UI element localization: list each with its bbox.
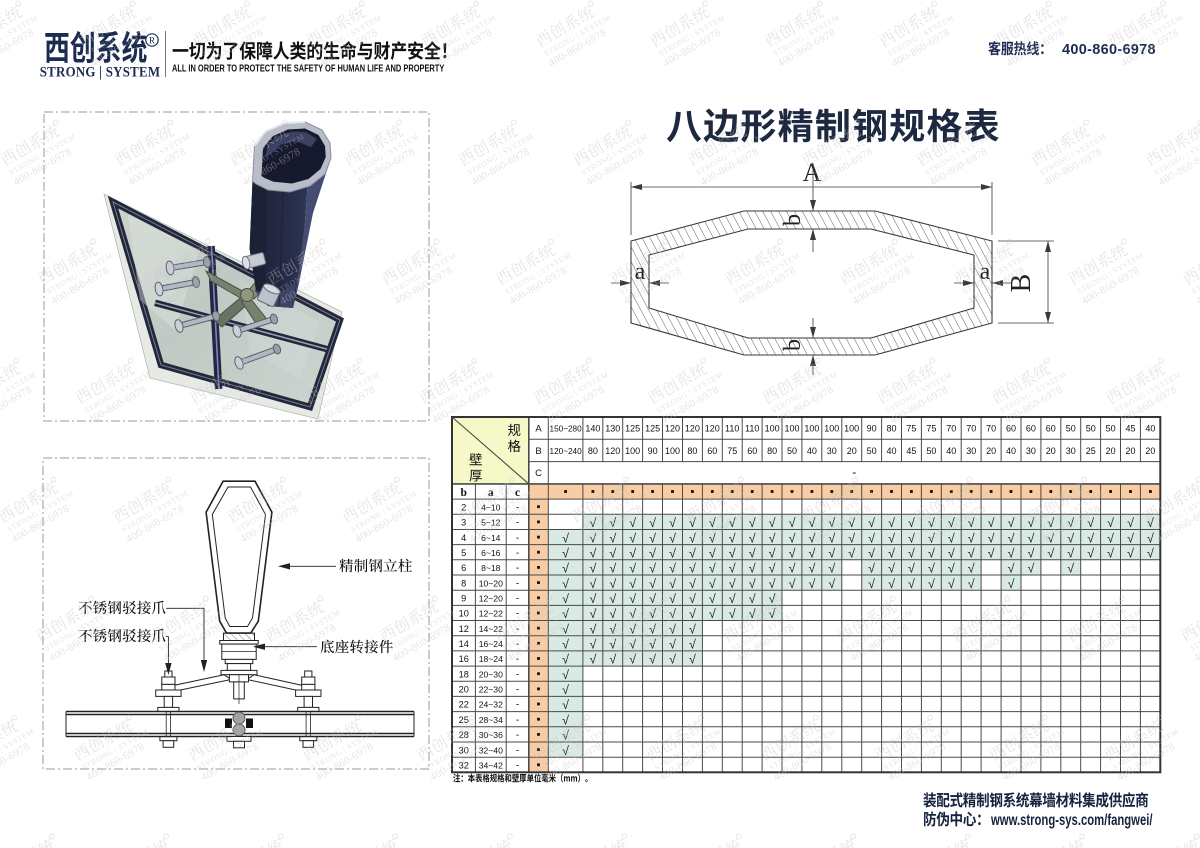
svg-text:√: √ xyxy=(928,546,935,560)
svg-text:125: 125 xyxy=(625,424,640,434)
svg-text:√: √ xyxy=(769,531,776,545)
svg-text:√: √ xyxy=(609,592,616,606)
svg-text:√: √ xyxy=(888,516,895,530)
svg-text:75: 75 xyxy=(926,424,936,434)
svg-text:√: √ xyxy=(669,592,676,606)
svg-text:12~22: 12~22 xyxy=(479,609,503,619)
svg-text:√: √ xyxy=(1067,546,1074,560)
svg-text:√: √ xyxy=(749,546,756,560)
svg-text:√: √ xyxy=(669,653,676,667)
svg-text:√: √ xyxy=(1047,546,1054,560)
svg-text:b: b xyxy=(780,339,806,351)
svg-text:-: - xyxy=(516,745,519,756)
svg-text:√: √ xyxy=(689,531,696,545)
svg-text:√: √ xyxy=(1127,546,1134,560)
svg-text:60: 60 xyxy=(1026,424,1036,434)
svg-text:18~24: 18~24 xyxy=(479,654,503,664)
svg-text:-: - xyxy=(516,578,519,589)
svg-text:25: 25 xyxy=(1086,446,1096,456)
svg-text:√: √ xyxy=(828,546,835,560)
svg-text:√: √ xyxy=(988,531,995,545)
svg-text:-: - xyxy=(516,715,519,726)
svg-text:www.strong-sys.com/fangwei/: www.strong-sys.com/fangwei/ xyxy=(990,811,1153,828)
svg-text:C: C xyxy=(535,468,542,479)
svg-text:√: √ xyxy=(562,683,569,697)
svg-text:24~32: 24~32 xyxy=(479,700,503,710)
svg-text:6~16: 6~16 xyxy=(481,548,501,558)
svg-text:30: 30 xyxy=(966,446,976,456)
svg-text:√: √ xyxy=(928,562,935,576)
svg-text:100: 100 xyxy=(784,424,799,434)
svg-text:40: 40 xyxy=(946,446,956,456)
svg-text:√: √ xyxy=(888,577,895,591)
svg-text:-: - xyxy=(516,563,519,574)
svg-text:90: 90 xyxy=(648,446,658,456)
svg-text:10: 10 xyxy=(459,609,469,619)
svg-text:60: 60 xyxy=(707,446,717,456)
svg-text:80: 80 xyxy=(767,446,777,456)
svg-text:√: √ xyxy=(988,546,995,560)
svg-text:√: √ xyxy=(669,577,676,591)
svg-text:√: √ xyxy=(589,562,596,576)
svg-text:-: - xyxy=(516,624,519,635)
svg-text:√: √ xyxy=(968,531,975,545)
svg-text:√: √ xyxy=(589,622,596,636)
svg-text:50: 50 xyxy=(867,446,877,456)
svg-text:40: 40 xyxy=(1006,446,1016,456)
svg-text:√: √ xyxy=(868,562,875,576)
svg-text:-: - xyxy=(516,533,519,544)
svg-text:22~30: 22~30 xyxy=(479,685,503,695)
svg-text:20: 20 xyxy=(847,446,857,456)
svg-text:√: √ xyxy=(629,577,636,591)
svg-text:√: √ xyxy=(729,531,736,545)
svg-text:-: - xyxy=(516,594,519,605)
svg-text:√: √ xyxy=(689,653,696,667)
svg-text:A: A xyxy=(535,424,542,435)
svg-text:√: √ xyxy=(789,562,796,576)
svg-text:20~30: 20~30 xyxy=(479,669,503,679)
svg-text:√: √ xyxy=(729,562,736,576)
svg-text:√: √ xyxy=(888,546,895,560)
svg-text:√: √ xyxy=(689,622,696,636)
svg-text:√: √ xyxy=(609,531,616,545)
svg-text:100: 100 xyxy=(824,424,839,434)
svg-text:50: 50 xyxy=(1066,424,1076,434)
svg-text:√: √ xyxy=(769,592,776,606)
svg-text:100: 100 xyxy=(844,424,859,434)
svg-text:5: 5 xyxy=(461,548,466,558)
svg-text:√: √ xyxy=(968,577,975,591)
svg-text:√: √ xyxy=(749,516,756,530)
svg-text:9: 9 xyxy=(461,594,466,604)
svg-text:√: √ xyxy=(749,577,756,591)
svg-text:√: √ xyxy=(1147,531,1154,545)
svg-text:√: √ xyxy=(649,653,656,667)
svg-text:√: √ xyxy=(629,546,636,560)
svg-text:140: 140 xyxy=(585,424,600,434)
svg-text:√: √ xyxy=(928,577,935,591)
svg-text:75: 75 xyxy=(727,446,737,456)
svg-text:√: √ xyxy=(1027,531,1034,545)
svg-text:110: 110 xyxy=(725,424,739,434)
svg-text:√: √ xyxy=(649,577,656,591)
svg-text:√: √ xyxy=(669,516,676,530)
svg-text:28~34: 28~34 xyxy=(479,715,503,725)
svg-text:√: √ xyxy=(908,562,915,576)
svg-text:50: 50 xyxy=(787,446,797,456)
svg-text:75: 75 xyxy=(906,424,916,434)
svg-text:√: √ xyxy=(689,577,696,591)
svg-text:√: √ xyxy=(562,562,569,576)
svg-text:√: √ xyxy=(1147,546,1154,560)
svg-text:√: √ xyxy=(908,531,915,545)
svg-text:√: √ xyxy=(629,562,636,576)
svg-text:√: √ xyxy=(908,577,915,591)
svg-text:B: B xyxy=(535,446,541,457)
svg-text:30: 30 xyxy=(1066,446,1076,456)
svg-text:√: √ xyxy=(808,577,815,591)
svg-text:√: √ xyxy=(749,607,756,621)
svg-text:√: √ xyxy=(908,546,915,560)
svg-text:√: √ xyxy=(848,546,855,560)
svg-text:√: √ xyxy=(669,562,676,576)
svg-text:√: √ xyxy=(562,729,569,743)
svg-text:√: √ xyxy=(589,577,596,591)
svg-text:√: √ xyxy=(808,546,815,560)
svg-text:√: √ xyxy=(808,562,815,576)
svg-text:80: 80 xyxy=(687,446,697,456)
svg-text:√: √ xyxy=(789,531,796,545)
svg-text:-: - xyxy=(516,669,519,680)
svg-text:√: √ xyxy=(1107,546,1114,560)
svg-text:125: 125 xyxy=(645,424,660,434)
svg-text:√: √ xyxy=(562,592,569,606)
svg-text:√: √ xyxy=(709,592,716,606)
svg-text:20: 20 xyxy=(986,446,996,456)
svg-text:√: √ xyxy=(789,546,796,560)
svg-text:b: b xyxy=(460,487,466,499)
svg-text:√: √ xyxy=(689,562,696,576)
svg-text:√: √ xyxy=(1127,531,1134,545)
svg-text:√: √ xyxy=(562,653,569,667)
svg-text:√: √ xyxy=(729,607,736,621)
svg-text:√: √ xyxy=(749,531,756,545)
svg-text:4: 4 xyxy=(461,533,466,543)
svg-text:100: 100 xyxy=(804,424,819,434)
svg-text:√: √ xyxy=(1067,531,1074,545)
svg-text:√: √ xyxy=(1027,546,1034,560)
svg-text:22: 22 xyxy=(459,700,469,710)
svg-text:√: √ xyxy=(589,592,596,606)
svg-text:√: √ xyxy=(589,546,596,560)
svg-text:45: 45 xyxy=(906,446,916,456)
svg-text:20: 20 xyxy=(1106,446,1116,456)
svg-text:√: √ xyxy=(649,531,656,545)
svg-text:√: √ xyxy=(589,607,596,621)
svg-text:√: √ xyxy=(689,638,696,652)
svg-text:100: 100 xyxy=(665,446,680,456)
svg-text:√: √ xyxy=(562,713,569,727)
svg-text:√: √ xyxy=(649,516,656,530)
svg-text:90: 90 xyxy=(867,424,877,434)
svg-text:√: √ xyxy=(1008,516,1015,530)
svg-text:-: - xyxy=(516,761,519,772)
svg-text:-: - xyxy=(516,685,519,696)
svg-text:√: √ xyxy=(562,668,569,682)
svg-text:√: √ xyxy=(609,607,616,621)
svg-text:√: √ xyxy=(789,516,796,530)
svg-text:√: √ xyxy=(649,592,656,606)
svg-text:√: √ xyxy=(649,546,656,560)
svg-text:√: √ xyxy=(562,638,569,652)
svg-text:8~18: 8~18 xyxy=(481,563,501,573)
svg-text:√: √ xyxy=(562,531,569,545)
svg-text:10~20: 10~20 xyxy=(479,578,503,588)
svg-text:30: 30 xyxy=(1026,446,1036,456)
svg-text:√: √ xyxy=(908,516,915,530)
svg-text:50: 50 xyxy=(1086,424,1096,434)
svg-text:√: √ xyxy=(709,577,716,591)
svg-text:√: √ xyxy=(1027,562,1034,576)
svg-text:40: 40 xyxy=(886,446,896,456)
svg-text:-: - xyxy=(516,548,519,559)
svg-text:√: √ xyxy=(769,516,776,530)
svg-text:70: 70 xyxy=(966,424,976,434)
svg-text:√: √ xyxy=(669,546,676,560)
svg-text:18: 18 xyxy=(459,669,469,679)
svg-text:120: 120 xyxy=(685,424,700,434)
svg-text:√: √ xyxy=(729,546,736,560)
svg-text:120: 120 xyxy=(605,446,620,456)
svg-text:√: √ xyxy=(609,546,616,560)
svg-text:√: √ xyxy=(669,638,676,652)
svg-text:130: 130 xyxy=(605,424,620,434)
svg-text:√: √ xyxy=(562,546,569,560)
svg-text:√: √ xyxy=(729,592,736,606)
svg-text:√: √ xyxy=(749,562,756,576)
svg-text:√: √ xyxy=(609,653,616,667)
svg-text:14: 14 xyxy=(459,639,469,649)
svg-text:√: √ xyxy=(1107,531,1114,545)
svg-text:√: √ xyxy=(789,577,796,591)
svg-text:√: √ xyxy=(769,577,776,591)
svg-text:34~42: 34~42 xyxy=(479,761,503,771)
svg-text:√: √ xyxy=(1087,531,1094,545)
svg-text:√: √ xyxy=(848,531,855,545)
svg-text:12: 12 xyxy=(459,624,469,634)
svg-text:45: 45 xyxy=(1125,424,1135,434)
svg-text:√: √ xyxy=(709,546,716,560)
svg-text:√: √ xyxy=(1008,577,1015,591)
svg-text:√: √ xyxy=(868,577,875,591)
svg-text:70: 70 xyxy=(946,424,956,434)
svg-text:40: 40 xyxy=(807,446,817,456)
svg-text:√: √ xyxy=(828,577,835,591)
svg-text:40: 40 xyxy=(1145,424,1155,434)
svg-text:b: b xyxy=(780,214,806,226)
svg-text:√: √ xyxy=(769,546,776,560)
svg-text:70: 70 xyxy=(986,424,996,434)
svg-text:150~280: 150~280 xyxy=(550,425,583,434)
svg-text:√: √ xyxy=(609,562,616,576)
svg-text:√: √ xyxy=(689,607,696,621)
svg-text:√: √ xyxy=(749,592,756,606)
svg-text:√: √ xyxy=(689,546,696,560)
svg-text:20: 20 xyxy=(1145,446,1155,456)
svg-text:√: √ xyxy=(709,607,716,621)
svg-text:√: √ xyxy=(948,577,955,591)
svg-text:STRONG | SYSTEM: STRONG | SYSTEM xyxy=(40,65,161,81)
svg-text:16: 16 xyxy=(459,654,469,664)
svg-text:-: - xyxy=(516,700,519,711)
svg-text:√: √ xyxy=(589,638,596,652)
svg-text:√: √ xyxy=(729,577,736,591)
svg-text:120~240: 120~240 xyxy=(550,447,583,456)
svg-text:√: √ xyxy=(1008,531,1015,545)
svg-text:6: 6 xyxy=(461,563,466,573)
svg-text:√: √ xyxy=(649,562,656,576)
svg-text:110: 110 xyxy=(745,424,759,434)
svg-text:√: √ xyxy=(589,653,596,667)
svg-text:√: √ xyxy=(669,531,676,545)
svg-text:√: √ xyxy=(968,562,975,576)
svg-text:√: √ xyxy=(1087,546,1094,560)
svg-text:√: √ xyxy=(609,577,616,591)
svg-text:√: √ xyxy=(1008,546,1015,560)
svg-text:√: √ xyxy=(1008,562,1015,576)
svg-text:12~20: 12~20 xyxy=(479,594,503,604)
svg-text:√: √ xyxy=(1067,562,1074,576)
svg-text:√: √ xyxy=(562,698,569,712)
svg-text:√: √ xyxy=(948,546,955,560)
svg-text:√: √ xyxy=(629,607,636,621)
svg-text:√: √ xyxy=(1107,516,1114,530)
svg-text:100: 100 xyxy=(625,446,640,456)
svg-text:√: √ xyxy=(709,562,716,576)
svg-text:√: √ xyxy=(689,592,696,606)
svg-text:30: 30 xyxy=(827,446,837,456)
svg-text:√: √ xyxy=(562,577,569,591)
svg-text:20: 20 xyxy=(459,685,469,695)
svg-text:20: 20 xyxy=(1046,446,1056,456)
svg-text:√: √ xyxy=(868,516,875,530)
svg-text:60: 60 xyxy=(747,446,757,456)
svg-text:50: 50 xyxy=(1106,424,1116,434)
svg-text:√: √ xyxy=(629,592,636,606)
svg-text:120: 120 xyxy=(705,424,720,434)
svg-text:8: 8 xyxy=(461,578,466,588)
svg-text:60: 60 xyxy=(1046,424,1056,434)
svg-text:50: 50 xyxy=(926,446,936,456)
svg-text:-: - xyxy=(516,730,519,741)
svg-text:√: √ xyxy=(629,531,636,545)
svg-text:a: a xyxy=(488,487,494,499)
svg-text:100: 100 xyxy=(765,424,780,434)
svg-text:√: √ xyxy=(888,562,895,576)
svg-text:√: √ xyxy=(888,531,895,545)
svg-text:√: √ xyxy=(868,546,875,560)
svg-text:√: √ xyxy=(868,531,875,545)
svg-text:√: √ xyxy=(968,546,975,560)
svg-text:20: 20 xyxy=(1125,446,1135,456)
svg-text:√: √ xyxy=(828,562,835,576)
svg-text:√: √ xyxy=(1127,516,1134,530)
svg-text:√: √ xyxy=(988,516,995,530)
svg-text:√: √ xyxy=(948,562,955,576)
svg-text:80: 80 xyxy=(588,446,598,456)
svg-text:√: √ xyxy=(769,562,776,576)
